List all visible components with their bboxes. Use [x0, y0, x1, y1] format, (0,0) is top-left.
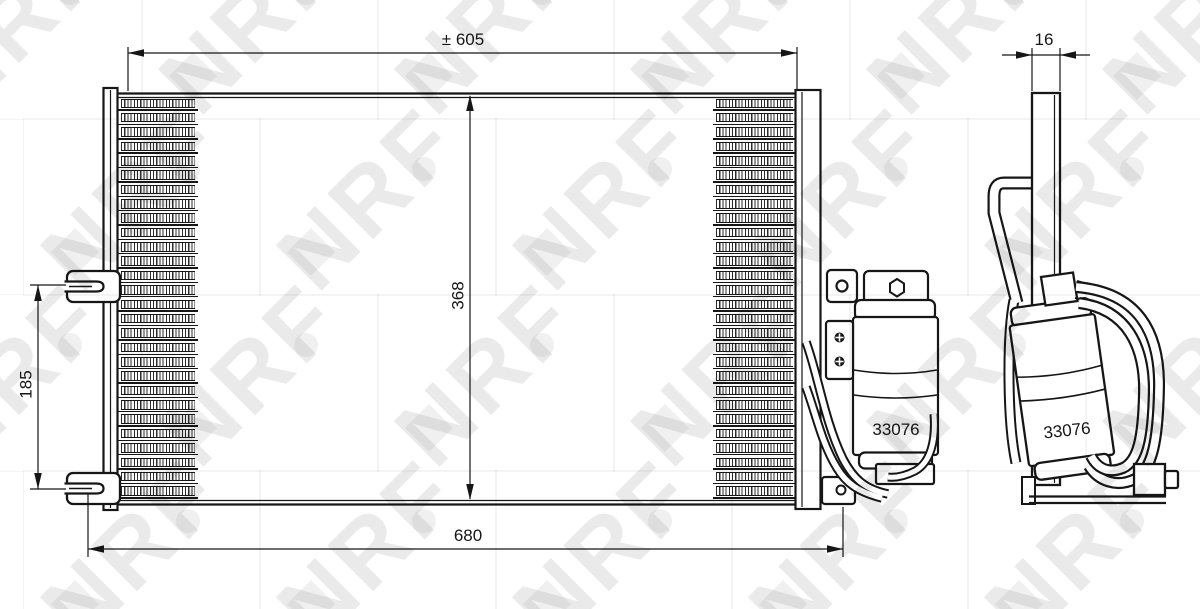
dim-bracket-spacing-label: 185 [17, 361, 36, 409]
line-art [0, 0, 1200, 609]
technical-drawing: ± 605 368 185 680 16 33076 33076 NRFNRFN… [0, 0, 1200, 609]
receiver-drier-front [806, 270, 938, 504]
dim-width-bottom-label: 680 [416, 526, 520, 545]
dimension-depth [1002, 48, 1090, 91]
part-number-front: 33076 [856, 420, 936, 439]
mount-hole [837, 281, 848, 292]
receiver-drier-side [1007, 297, 1116, 481]
hex-hole [890, 279, 904, 297]
dimension-width-top [128, 47, 797, 91]
dim-depth-label: 16 [1018, 30, 1070, 49]
side-view [994, 93, 1178, 504]
dim-width-top-label: ± 605 [411, 30, 515, 49]
dim-height-label: 368 [449, 272, 468, 320]
pipe-fitting [1134, 464, 1165, 495]
mount-hole [837, 486, 846, 495]
